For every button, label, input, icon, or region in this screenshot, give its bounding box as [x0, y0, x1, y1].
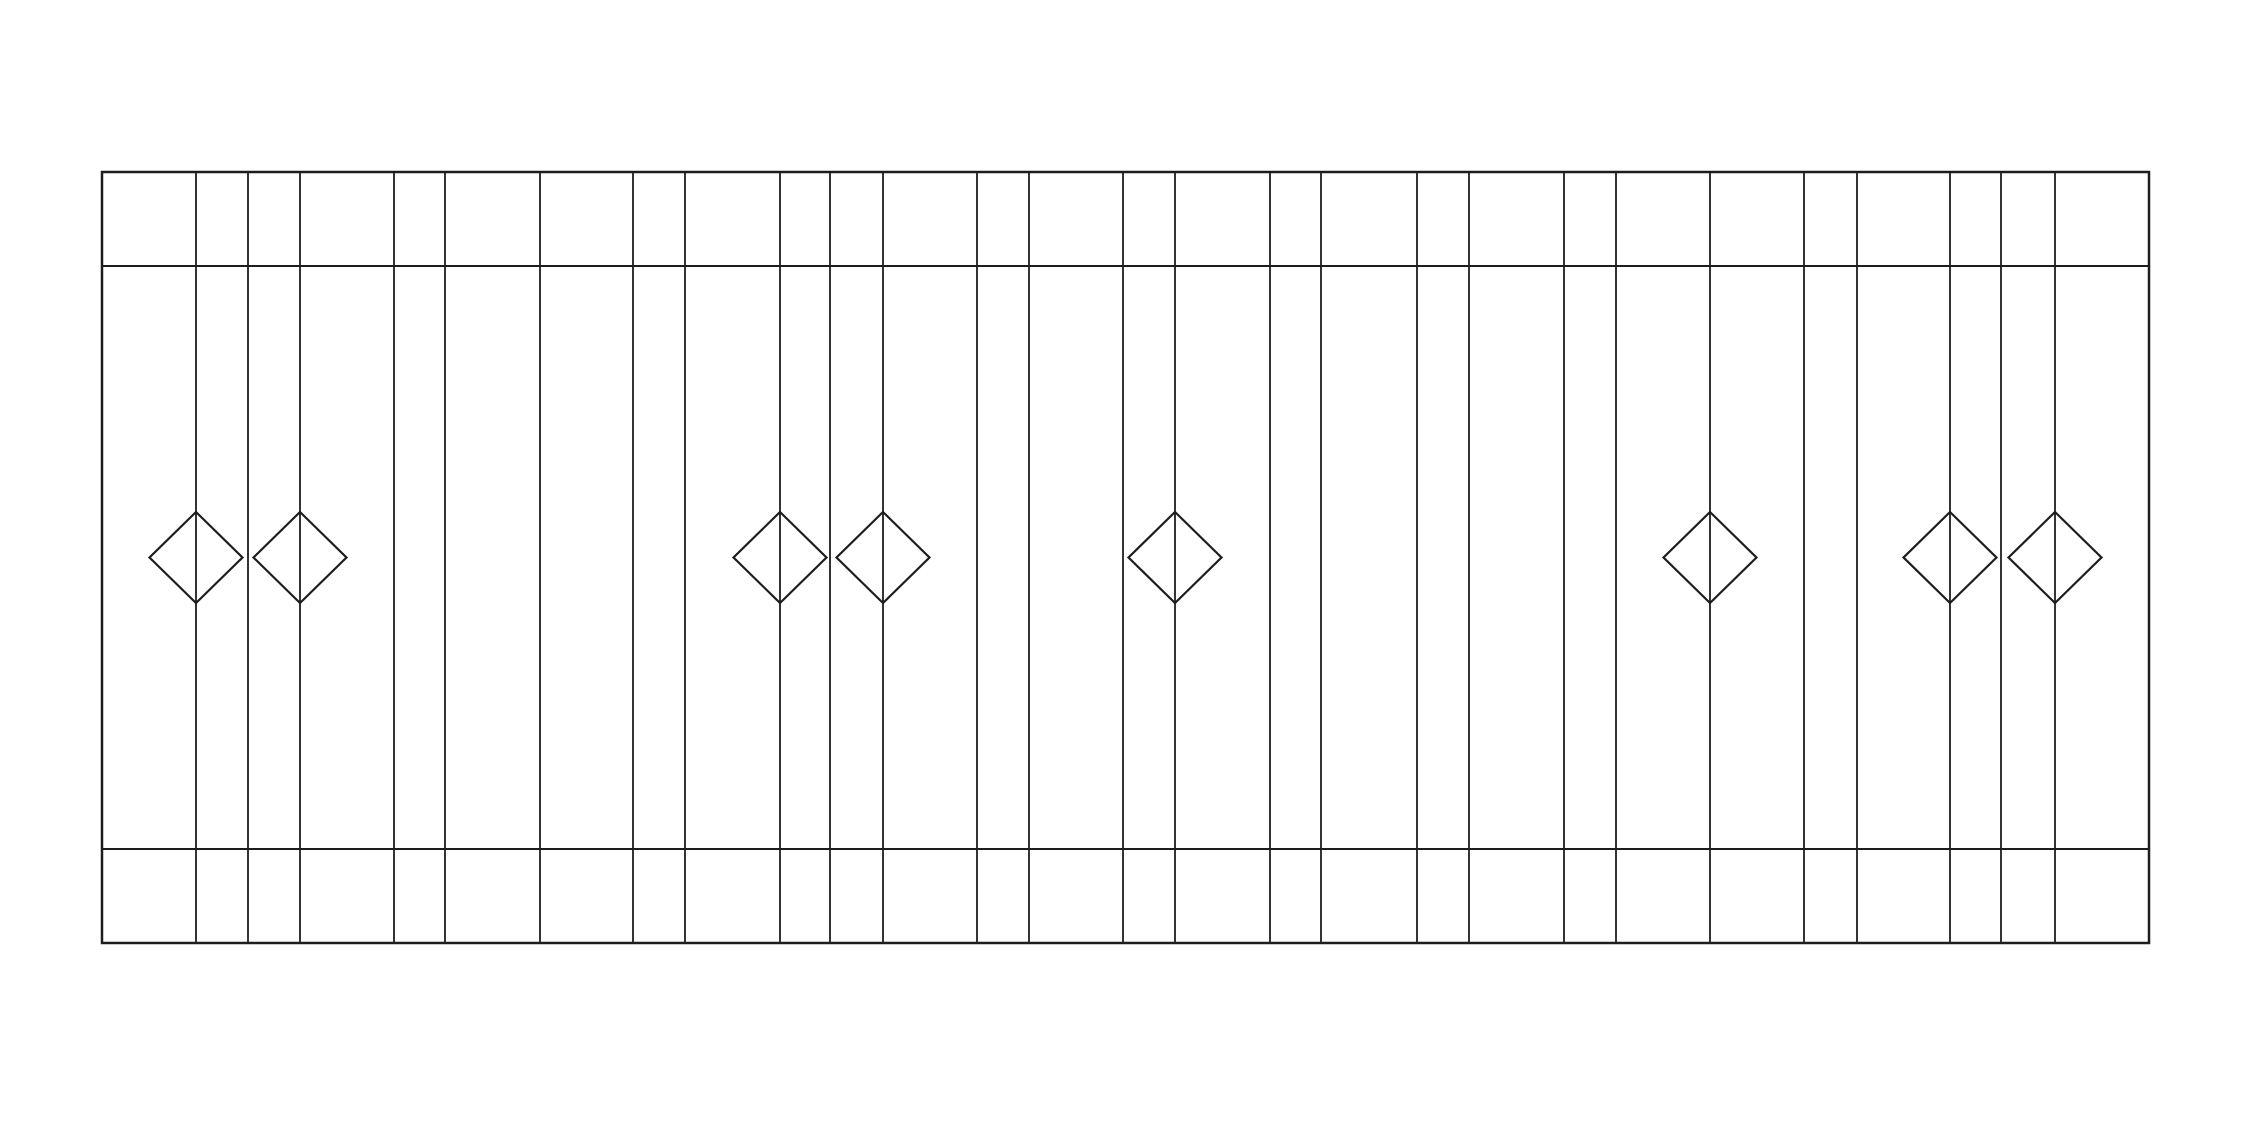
frame-rect	[102, 172, 2149, 943]
drawing-canvas	[0, 0, 2251, 1122]
fence-elevation-group	[102, 172, 2149, 943]
fence-elevation-svg	[0, 0, 2251, 1122]
